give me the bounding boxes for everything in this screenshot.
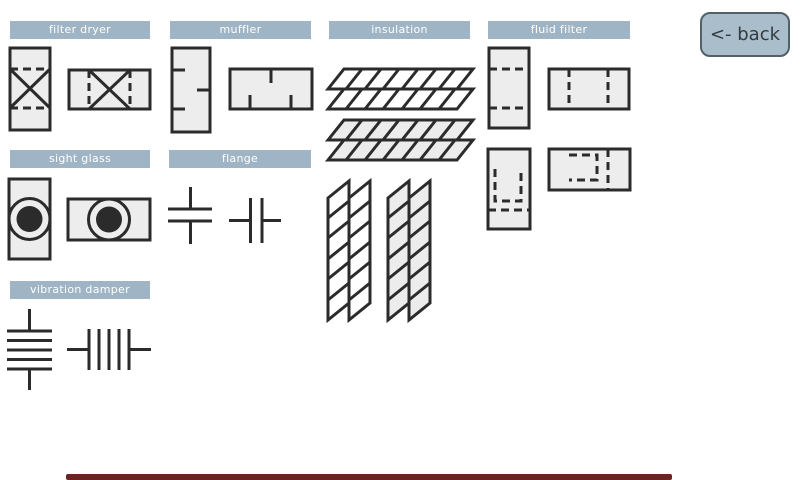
- back-button-label: <- back: [710, 24, 780, 45]
- vibration-damper-vertical-icon: [7, 309, 52, 390]
- muffler-horizontal-icon: [230, 69, 312, 109]
- sight-glass-horizontal-icon: [68, 199, 150, 240]
- insulation-horizontal-icon: [328, 69, 473, 109]
- fluid-filter-horizontal-icon: [549, 69, 629, 109]
- symbols-canvas: [0, 0, 800, 480]
- fluid-filter-bag-horizontal-icon: [549, 149, 630, 190]
- back-button[interactable]: <- back: [700, 12, 790, 57]
- vibration-damper-horizontal-icon: [67, 329, 151, 370]
- symbol-legend-screen: filter dryer muffler insulation fluid fi…: [0, 0, 800, 480]
- bottom-bar: [66, 474, 672, 480]
- insulation-vertical-icon: [328, 181, 370, 320]
- flange-vertical-icon: [168, 187, 212, 244]
- insulation-horizontal-filled-icon: [328, 120, 473, 160]
- filter-dryer-vertical-icon: [10, 48, 50, 130]
- filter-dryer-horizontal-icon: [69, 70, 150, 109]
- fluid-filter-vertical-icon: [489, 48, 529, 128]
- fluid-filter-bag-vertical-icon: [488, 149, 530, 229]
- flange-horizontal-icon: [229, 198, 281, 243]
- sight-glass-vertical-icon: [9, 179, 50, 259]
- muffler-vertical-icon: [172, 48, 210, 132]
- insulation-vertical-filled-icon: [388, 181, 430, 320]
